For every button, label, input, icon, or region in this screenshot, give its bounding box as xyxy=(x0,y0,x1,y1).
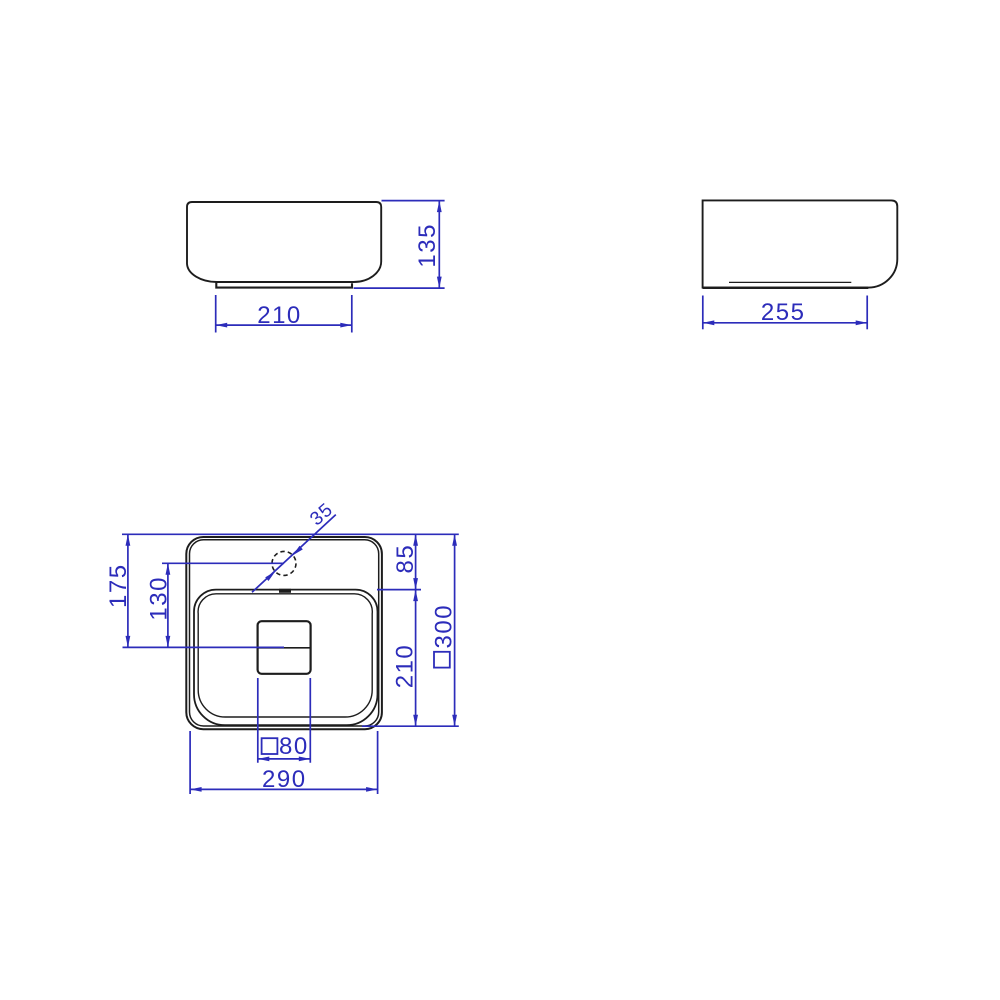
svg-text:255: 255 xyxy=(761,299,806,326)
svg-text:210: 210 xyxy=(257,302,302,329)
svg-text:175: 175 xyxy=(105,563,132,608)
svg-text:300: 300 xyxy=(430,604,457,649)
svg-text:130: 130 xyxy=(145,576,172,621)
svg-text:290: 290 xyxy=(262,766,307,793)
svg-text:210: 210 xyxy=(391,644,418,689)
svg-text:85: 85 xyxy=(392,544,419,574)
svg-text:80: 80 xyxy=(279,733,309,760)
svg-text:135: 135 xyxy=(414,223,441,268)
